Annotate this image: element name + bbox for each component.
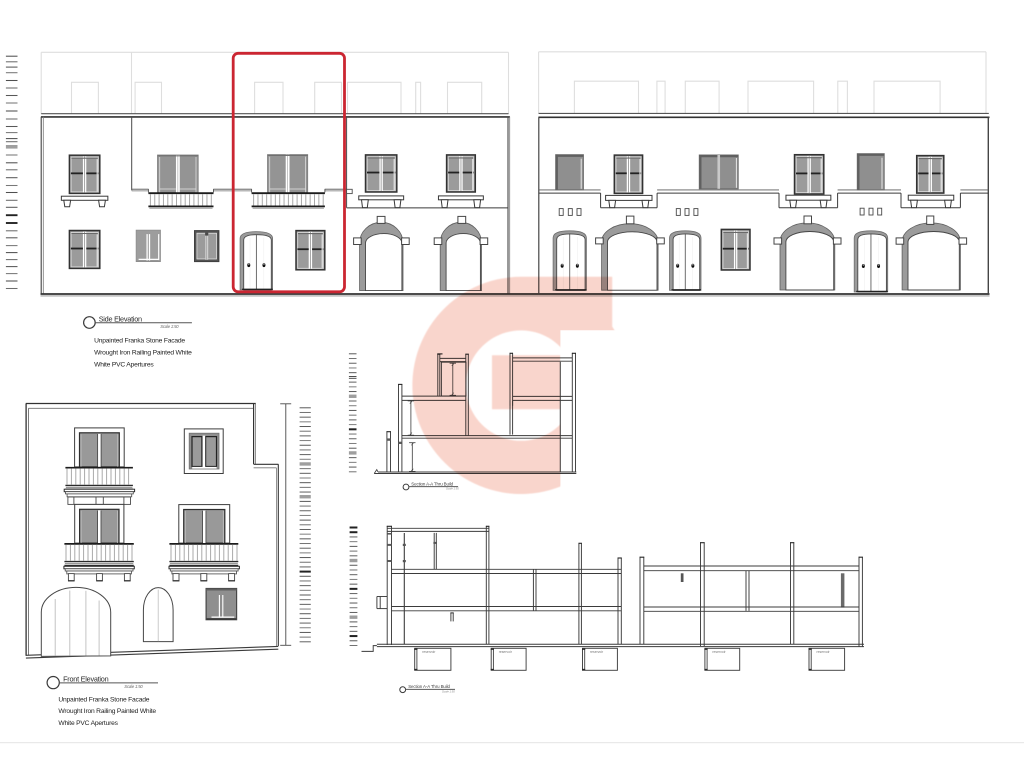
svg-text:Scale 1:50: Scale 1:50 [124,684,143,689]
svg-text:reservoir: reservoir [422,650,436,654]
svg-text:White PVC Apertures: White PVC Apertures [94,361,154,368]
svg-text:reservoir: reservoir [590,650,604,654]
svg-text:White PVC Apertures: White PVC Apertures [58,720,118,727]
svg-text:Section A-A Thru Build: Section A-A Thru Build [411,481,453,486]
svg-text:Unpainted Franka Stone Facade: Unpainted Franka Stone Facade [94,337,185,344]
svg-text:Scale 1:50: Scale 1:50 [160,324,179,329]
svg-text:reservoir: reservoir [499,650,513,654]
svg-text:Side Elevation: Side Elevation [99,314,142,323]
svg-text:reservoir: reservoir [817,650,831,654]
svg-text:Scale 1:50: Scale 1:50 [442,689,455,693]
svg-text:Section A-A Thru Build: Section A-A Thru Build [408,684,450,689]
svg-text:Front Elevation: Front Elevation [63,674,109,683]
svg-text:Wrought Iron Railing Painted W: Wrought Iron Railing Painted White [58,708,156,715]
svg-text:reservoir: reservoir [712,650,726,654]
svg-text:Unpainted Franka Stone Facade: Unpainted Franka Stone Facade [58,697,149,704]
svg-text:Scale 1:50: Scale 1:50 [446,487,459,491]
svg-text:Wrought Iron Railing Painted W: Wrought Iron Railing Painted White [94,349,192,356]
